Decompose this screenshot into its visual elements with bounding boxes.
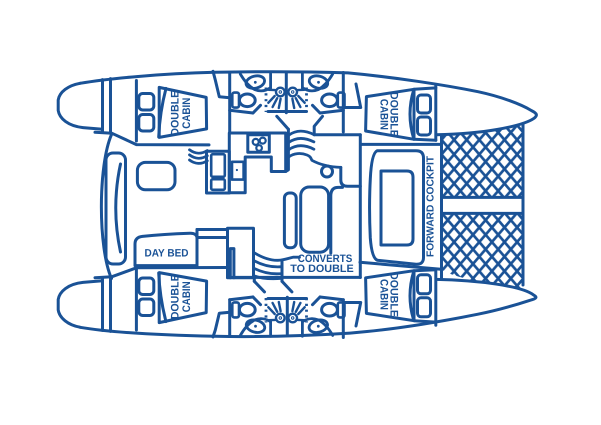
svg-text:CABIN: CABIN	[181, 98, 193, 129]
svg-text:DAY BED: DAY BED	[145, 248, 189, 260]
svg-text:CABIN: CABIN	[181, 281, 193, 312]
svg-text:FORWARD COCKPIT: FORWARD COCKPIT	[426, 155, 437, 257]
svg-text:DOUBLE: DOUBLE	[170, 91, 182, 136]
svg-text:CABIN: CABIN	[378, 279, 390, 310]
svg-text:CABIN: CABIN	[378, 99, 390, 130]
svg-text:TO DOUBLE: TO DOUBLE	[290, 263, 354, 275]
svg-text:DOUBLE: DOUBLE	[170, 274, 182, 319]
